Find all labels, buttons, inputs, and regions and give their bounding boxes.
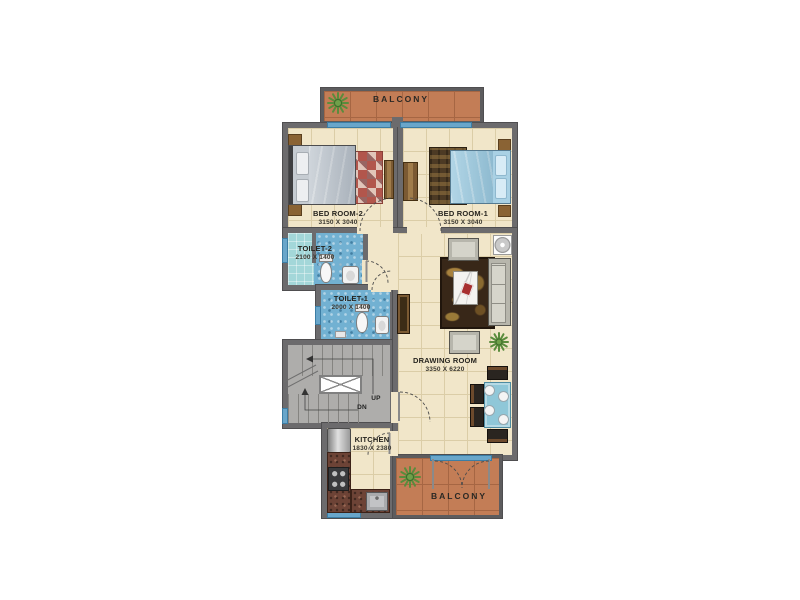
stairs-upper-flight [302,345,390,376]
bedroom2-bed [288,145,356,205]
dining-plate [498,391,509,402]
armchair [448,238,479,261]
drawing-room-dims: 3350 X 6220 [395,366,495,373]
stairs-dn-label: DN [353,404,371,411]
wash-basin-icon [375,316,389,334]
pillow [296,179,309,202]
toilet1-label: TOILET-1 [322,295,380,303]
pillow [296,152,309,175]
coffee-table [453,271,478,305]
balcony-bottom-room [393,455,502,518]
stairs-landing-cross [319,375,362,394]
sofa-cushions [491,263,506,323]
table-tray [460,282,474,297]
stairs-lower-flight [288,394,362,423]
bedroom2-label: BED ROOM-2 [288,210,388,218]
bath-mat [335,331,346,338]
pillow [495,155,507,176]
toilet2-label: TOILET-2 [285,245,345,253]
door-leaf [488,459,490,489]
bedroom2-door-opening [357,227,393,234]
dining-chair [487,429,508,443]
dining-plate [484,385,495,396]
kitchen-dims: 1830 X 2380 [344,445,400,452]
stove-icon [328,467,349,491]
bed-headboard [289,146,293,204]
bedroom1-dims: 3150 X 3040 [413,219,513,226]
toilet2-opening [362,260,370,284]
wash-basin-icon [342,266,359,284]
pillow [495,178,507,199]
toilet1-dims: 2000 X 1400 [320,304,382,311]
hall-floor [368,233,398,290]
side-table-fan [493,235,512,255]
balcony-bottom-label: BALCONY [409,492,509,501]
window [400,122,472,128]
sofa [488,258,511,326]
kitchen-label: KITCHEN [350,436,394,444]
window [327,122,391,128]
wardrobe [403,162,418,201]
bed-blanket [451,151,493,203]
drawing-room-label: DRAWING ROOM [395,357,495,365]
bedroom1-label: BED ROOM-1 [413,210,513,218]
dining-plate [498,414,509,425]
toilet-wc-icon [320,262,332,283]
balcony-door-window [430,455,492,461]
wardrobe [384,160,394,199]
floor-plan-canvas: BALCONY BED ROOM-2 3150 X 3040 BED ROOM-… [0,0,800,600]
toilet1-opening [371,284,391,292]
armchair [449,331,480,354]
dining-chair [470,407,484,427]
entrance-opening [391,392,400,423]
tv-unit [398,295,409,333]
bedroom2-dims: 3150 X 3040 [288,219,388,226]
stairs-up-label: UP [367,395,385,402]
toilet2-dims: 2100 X 1400 [283,254,347,261]
dining-plate [484,405,495,416]
door-leaf [432,459,434,489]
bed-blanket [309,146,355,204]
dining-chair [470,384,484,404]
toilet-wc-icon [356,312,368,333]
bedroom1-bed [450,150,511,204]
balcony-top-label: BALCONY [321,95,481,104]
kitchen-sink-icon [366,492,388,511]
bedroom1-door-opening [407,227,441,234]
